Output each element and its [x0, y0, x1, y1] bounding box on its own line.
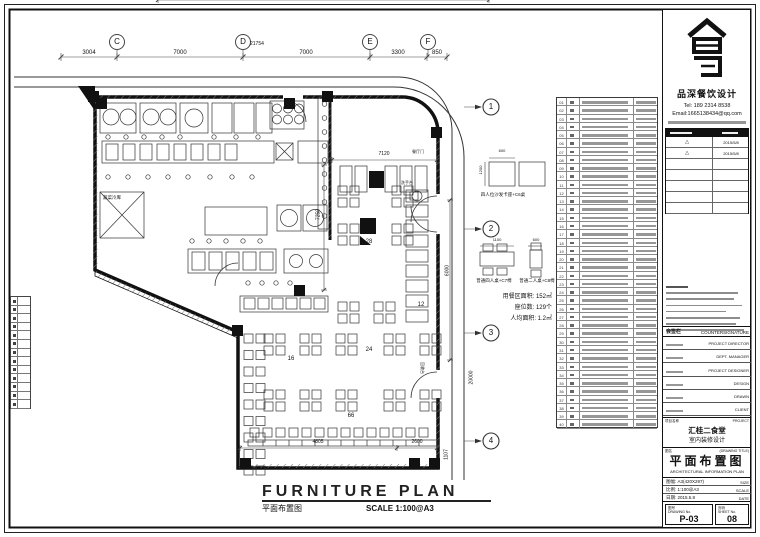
- dim-bottom-left: 4805: [298, 440, 338, 445]
- stat-dining-area: 用餐区面积: 152㎡: [420, 294, 552, 300]
- dim-bottom-right: 2600: [397, 440, 437, 445]
- qty-smudge: [570, 366, 574, 369]
- qty-smudge: [570, 208, 574, 211]
- revision-mark: △: [680, 151, 694, 156]
- index-mark: [13, 385, 16, 388]
- col-line: [633, 296, 634, 303]
- qty-smudge: [570, 217, 574, 220]
- schedule-row-no: 38: [557, 406, 566, 411]
- col-line: [712, 148, 713, 158]
- col-line: [566, 313, 567, 320]
- col-line: [566, 123, 567, 130]
- col-line: [566, 239, 567, 246]
- size-smudge: [636, 118, 656, 121]
- qty-smudge: [570, 250, 574, 253]
- name-smudge: [582, 415, 628, 418]
- name-smudge: [582, 341, 628, 344]
- drawing-title-section: 图名 (DRAWING TITLE) 平面布置图 ARCHITECTURAL I…: [663, 447, 751, 477]
- schedule-row-no: 27: [557, 315, 566, 320]
- name-smudge: [582, 275, 628, 278]
- note-line: [666, 286, 688, 288]
- qty-smudge: [570, 266, 574, 269]
- col-line: [712, 159, 713, 169]
- qty-smudge: [570, 242, 574, 245]
- note-line: [666, 292, 738, 294]
- schedule-row: 17: [557, 230, 657, 238]
- stat-seat-count: 座位数: 129个: [420, 305, 552, 311]
- col-line: [633, 371, 634, 378]
- role-zh-smudge: [666, 410, 683, 412]
- name-smudge: [582, 200, 628, 203]
- left-index-strip: [10, 296, 31, 409]
- schedule-row: 11: [557, 181, 657, 189]
- col-line: [566, 263, 567, 270]
- schedule-row-no: 33: [557, 365, 566, 370]
- index-row: [11, 374, 30, 383]
- signature-row: PROJECT DESIGNER: [663, 363, 751, 376]
- size-smudge: [636, 275, 656, 278]
- col-line: [579, 404, 580, 411]
- countersign-zh: 会签栏: [666, 330, 681, 335]
- size-smudge: [636, 208, 656, 211]
- schedule-row-no: 01: [557, 100, 566, 105]
- count-wash-row: 12: [412, 302, 430, 308]
- schedule-row: 16: [557, 222, 657, 230]
- role-en: PROJECT DIRECTOR: [708, 342, 749, 346]
- schedule-row-no: 03: [557, 117, 566, 122]
- axis-overall-dim: 21754: [250, 42, 264, 47]
- plan-title-underline: [262, 500, 491, 502]
- size-smudge: [636, 382, 656, 385]
- size-smudge: [636, 233, 656, 236]
- index-mark: [13, 300, 16, 303]
- schedule-row: 35: [557, 379, 657, 387]
- sheet-no-box: 页码 SHEET No. 08: [715, 504, 749, 525]
- col-line: [17, 323, 18, 331]
- name-smudge: [582, 291, 628, 294]
- meta-row: 比例: 1:100@A3SCALE: [663, 486, 751, 494]
- col-line: [566, 371, 567, 378]
- schedule-row: 10: [557, 172, 657, 180]
- qty-smudge: [570, 283, 574, 286]
- qty-smudge: [570, 423, 574, 426]
- role-zh-smudge: [666, 397, 683, 399]
- stat-per-capita: 人均面积: 1.2㎡: [420, 316, 552, 322]
- col-line: [17, 392, 18, 400]
- col-line: [579, 189, 580, 196]
- col-line: [579, 313, 580, 320]
- col-line: [579, 354, 580, 361]
- name-smudge: [582, 118, 628, 121]
- brand-email: Email:1665138434@qq.com: [663, 112, 751, 118]
- schedule-row: 08: [557, 156, 657, 164]
- size-smudge: [636, 192, 656, 195]
- name-smudge: [582, 374, 628, 377]
- label-dining-door: 餐厅门: [412, 150, 424, 154]
- schedule-row-no: 29: [557, 331, 566, 336]
- size-smudge: [636, 349, 656, 352]
- col-line: [17, 374, 18, 382]
- title-block: 品深餐饮设计 Tel: 189 2314 8538 Email:16651384…: [662, 10, 750, 527]
- grid-bubble-E: E: [363, 38, 377, 46]
- col-line: [633, 263, 634, 270]
- col-line: [566, 288, 567, 295]
- meta-en: DATE: [739, 497, 749, 501]
- qty-smudge: [570, 233, 574, 236]
- name-smudge: [582, 423, 628, 426]
- role-zh-smudge: [666, 384, 683, 386]
- schedule-row-no: 19: [557, 249, 566, 254]
- qty-smudge: [570, 134, 574, 137]
- index-row: [11, 357, 30, 366]
- grid-bubble-F: F: [421, 38, 435, 46]
- name-smudge: [582, 184, 628, 187]
- col-line: [633, 230, 634, 237]
- index-row: [11, 366, 30, 375]
- col-line: [633, 396, 634, 403]
- drawing-no-box: 图号 DRAWING No. P-03: [665, 504, 713, 525]
- col-line: [633, 379, 634, 386]
- col-line: [633, 164, 634, 171]
- col-line: [17, 366, 18, 374]
- col-line: [566, 280, 567, 287]
- schedule-row: 29: [557, 329, 657, 337]
- qty-smudge: [570, 374, 574, 377]
- schedule-row-no: 26: [557, 307, 566, 312]
- count-banquette: 28: [360, 239, 378, 245]
- qty-smudge: [570, 126, 574, 129]
- size-smudge: [636, 159, 656, 162]
- col-line: [566, 214, 567, 221]
- role-zh-smudge: [666, 344, 683, 346]
- col-line: [633, 305, 634, 312]
- schedule-row-no: 12: [557, 191, 566, 196]
- col-line: [566, 404, 567, 411]
- schedule-row-no: 15: [557, 216, 566, 221]
- grid-bubble-D: D: [236, 38, 250, 46]
- dim-right-small: 1107: [445, 442, 450, 468]
- qty-smudge: [570, 258, 574, 261]
- drawing-title-en: ARCHITECTURAL INFORMATION PLAN: [663, 470, 751, 474]
- role-en: CLIENT: [735, 408, 749, 412]
- col-line: [17, 349, 18, 357]
- col-line: [566, 189, 567, 196]
- index-row: [11, 392, 30, 401]
- right-grid-bubble: 1: [484, 103, 498, 111]
- size-smudge: [636, 283, 656, 286]
- col-line: [579, 280, 580, 287]
- index-mark: [13, 377, 16, 380]
- size-smudge: [636, 291, 656, 294]
- detail-booth-label: 四人位沙发卡座+C6桌: [453, 193, 553, 198]
- label-recycle-counter: 回收台: [420, 362, 424, 374]
- name-smudge: [582, 101, 628, 104]
- name-smudge: [582, 192, 628, 195]
- size-smudge: [636, 175, 656, 178]
- schedule-row-no: 23: [557, 282, 566, 287]
- dim-road: 20000: [470, 361, 475, 395]
- revision-row: [666, 159, 748, 170]
- col-line: [17, 314, 18, 322]
- name-smudge: [582, 233, 628, 236]
- col-line: [633, 420, 634, 427]
- name-smudge: [582, 134, 628, 137]
- qty-smudge: [570, 349, 574, 352]
- col-line: [566, 396, 567, 403]
- col-line: [566, 379, 567, 386]
- index-mark: [13, 360, 16, 363]
- col-line: [579, 371, 580, 378]
- schedule-row-no: 34: [557, 373, 566, 378]
- drawing-title-zh: 平面布置图: [663, 455, 751, 467]
- schedule-row: 19: [557, 247, 657, 255]
- qty-smudge: [570, 118, 574, 121]
- revision-row: △2015/5/8: [666, 148, 748, 159]
- meta-en: SIZE: [740, 481, 749, 485]
- signature-row: PROJECT DIRECTOR: [663, 337, 751, 350]
- col-line: [579, 363, 580, 370]
- col-line: [633, 387, 634, 394]
- name-smudge: [582, 390, 628, 393]
- detail-2top-dim: 600: [516, 238, 556, 242]
- right-grid-bubble: 4: [484, 437, 498, 445]
- size-smudge: [636, 109, 656, 112]
- col-line: [579, 156, 580, 163]
- index-row: [11, 297, 30, 306]
- axis-dim: 3004: [72, 50, 106, 56]
- col-line: [579, 420, 580, 427]
- schedule-row-no: 36: [557, 389, 566, 394]
- col-line: [579, 205, 580, 212]
- index-mark: [13, 394, 16, 397]
- qty-smudge: [570, 332, 574, 335]
- furniture-schedule-table: 0102030405060708091011121314151617181920…: [556, 97, 658, 428]
- signature-row: DRAWN: [663, 390, 751, 403]
- col-line: [579, 379, 580, 386]
- col-line: [633, 106, 634, 113]
- col-line: [633, 329, 634, 336]
- qty-smudge: [570, 275, 574, 278]
- col-line: [566, 412, 567, 419]
- schedule-row: 09: [557, 164, 657, 172]
- count-mid-left: 16: [282, 356, 300, 362]
- qty-smudge: [570, 357, 574, 360]
- schedule-row: 12: [557, 189, 657, 197]
- size-smudge: [636, 399, 656, 402]
- name-smudge: [582, 332, 628, 335]
- dim-top-width: 7120: [364, 152, 404, 157]
- col-line: [566, 156, 567, 163]
- col-line: [566, 222, 567, 229]
- qty-smudge: [570, 142, 574, 145]
- col-line: [17, 340, 18, 348]
- size-smudge: [636, 126, 656, 129]
- signature-row: DEPT. MANAGER: [663, 350, 751, 363]
- size-smudge: [636, 225, 656, 228]
- col-line: [579, 396, 580, 403]
- name-smudge: [582, 349, 628, 352]
- schedule-row-no: 30: [557, 340, 566, 345]
- col-line: [566, 363, 567, 370]
- col-line: [633, 123, 634, 130]
- drawing-no-value: P-03: [666, 515, 712, 524]
- schedule-row: 07: [557, 148, 657, 156]
- number-boxes: 图号 DRAWING No. P-03 页码 SHEET No. 08: [663, 501, 751, 526]
- qty-smudge: [570, 308, 574, 311]
- name-smudge: [582, 250, 628, 253]
- size-smudge: [636, 250, 656, 253]
- schedule-row: 13: [557, 197, 657, 205]
- col-line: [566, 106, 567, 113]
- col-line: [566, 346, 567, 353]
- axis-dim: 3300: [381, 50, 415, 56]
- schedule-row: 39: [557, 412, 657, 420]
- col-line: [579, 247, 580, 254]
- meta-en: SCALE: [736, 489, 749, 493]
- col-line: [579, 239, 580, 246]
- col-line: [579, 148, 580, 155]
- col-line: [579, 98, 580, 105]
- schedule-row: 02: [557, 106, 657, 114]
- index-row: [11, 400, 30, 409]
- col-line: [633, 354, 634, 361]
- index-mark: [13, 342, 16, 345]
- name-smudge: [582, 225, 628, 228]
- col-line: [579, 329, 580, 336]
- axis-dim: 7000: [163, 50, 197, 56]
- size-smudge: [636, 407, 656, 410]
- schedule-row-no: 05: [557, 133, 566, 138]
- note-line: [666, 305, 742, 307]
- col-line: [633, 205, 634, 212]
- index-mark: [13, 317, 16, 320]
- size-smudge: [636, 332, 656, 335]
- qty-smudge: [570, 415, 574, 418]
- count-bench: 66: [342, 413, 360, 419]
- name-smudge: [582, 399, 628, 402]
- col-line: [633, 247, 634, 254]
- count-mid: 24: [360, 347, 378, 353]
- col-line: [712, 137, 713, 147]
- meta-zh: 日期: 2015.5.8: [666, 496, 695, 501]
- col-line: [566, 172, 567, 179]
- plan-title-zh: 平面布置图: [262, 505, 302, 513]
- col-line: [579, 288, 580, 295]
- col-line: [633, 255, 634, 262]
- size-smudge: [636, 324, 656, 327]
- meta-zh: 图幅: A3(420X297): [666, 480, 704, 485]
- col-line: [579, 230, 580, 237]
- label-veg-cold-room: 蔬菜冷库: [103, 196, 121, 201]
- note-line: [666, 298, 734, 300]
- size-smudge: [636, 258, 656, 261]
- schedule-row: 36: [557, 387, 657, 395]
- col-line: [633, 189, 634, 196]
- detail-booth-dim-h: 1200: [479, 158, 483, 182]
- col-line: [566, 420, 567, 427]
- qty-smudge: [570, 101, 574, 104]
- col-line: [566, 98, 567, 105]
- size-smudge: [636, 266, 656, 269]
- right-grid-bubble: 3: [484, 329, 498, 337]
- col-line: [579, 139, 580, 146]
- schedule-row-no: 20: [557, 257, 566, 262]
- schedule-row-no: 40: [557, 422, 566, 427]
- size-smudge: [636, 415, 656, 418]
- revision-table: △2015/5/8△2015/5/8: [665, 128, 749, 214]
- dim-right-height: 6000: [446, 256, 451, 286]
- qty-smudge: [570, 167, 574, 170]
- size-smudge: [636, 423, 656, 426]
- col-line: [566, 272, 567, 279]
- schedule-row: 20: [557, 255, 657, 263]
- size-smudge: [636, 242, 656, 245]
- role-en: DESIGN: [734, 382, 749, 386]
- col-line: [566, 321, 567, 328]
- col-line: [633, 197, 634, 204]
- name-smudge: [582, 366, 628, 369]
- revision-row: △2015/5/8: [666, 137, 748, 148]
- col-line: [633, 139, 634, 146]
- schedule-row-no: 06: [557, 141, 566, 146]
- col-line: [579, 131, 580, 138]
- schedule-row-no: 11: [557, 183, 566, 188]
- schedule-row-no: 28: [557, 323, 566, 328]
- index-row: [11, 314, 30, 323]
- col-line: [579, 338, 580, 345]
- qty-smudge: [570, 200, 574, 203]
- col-line: [566, 115, 567, 122]
- schedule-row-no: 07: [557, 150, 566, 155]
- brand-tel: Tel: 189 2314 8538: [663, 104, 751, 110]
- col-line: [579, 296, 580, 303]
- col-line: [579, 106, 580, 113]
- col-line: [17, 331, 18, 339]
- name-smudge: [582, 126, 628, 129]
- col-line: [17, 306, 18, 314]
- schedule-row: 37: [557, 396, 657, 404]
- qty-smudge: [570, 151, 574, 154]
- countersign-row: 会签栏 COUNTERSIGNATURE: [663, 326, 751, 337]
- schedule-row: 27: [557, 313, 657, 321]
- size-smudge: [636, 341, 656, 344]
- schedule-row: 14: [557, 205, 657, 213]
- name-smudge: [582, 299, 628, 302]
- col-line: [633, 412, 634, 419]
- col-line: [566, 305, 567, 312]
- col-line: [633, 131, 634, 138]
- qty-smudge: [570, 390, 574, 393]
- col-line: [579, 272, 580, 279]
- drawing-sheet: { "sheet_title": {"en": "FURNITURE PLAN"…: [0, 0, 760, 537]
- size-smudge: [636, 151, 656, 154]
- schedule-row-no: 13: [557, 199, 566, 204]
- col-line: [633, 321, 634, 328]
- drawing-label-en: (DRAWING TITLE): [719, 450, 749, 454]
- drawing-label-zh: 图名: [665, 450, 672, 454]
- qty-smudge: [570, 225, 574, 228]
- revision-header: [666, 129, 748, 137]
- col-line: [579, 387, 580, 394]
- col-line: [633, 98, 634, 105]
- name-smudge: [582, 258, 628, 261]
- brand-tagline-smudge: [668, 121, 746, 124]
- size-smudge: [636, 167, 656, 170]
- col-line: [566, 230, 567, 237]
- project-subname: 室内装修设计: [663, 438, 751, 444]
- col-line: [633, 280, 634, 287]
- name-smudge: [582, 109, 628, 112]
